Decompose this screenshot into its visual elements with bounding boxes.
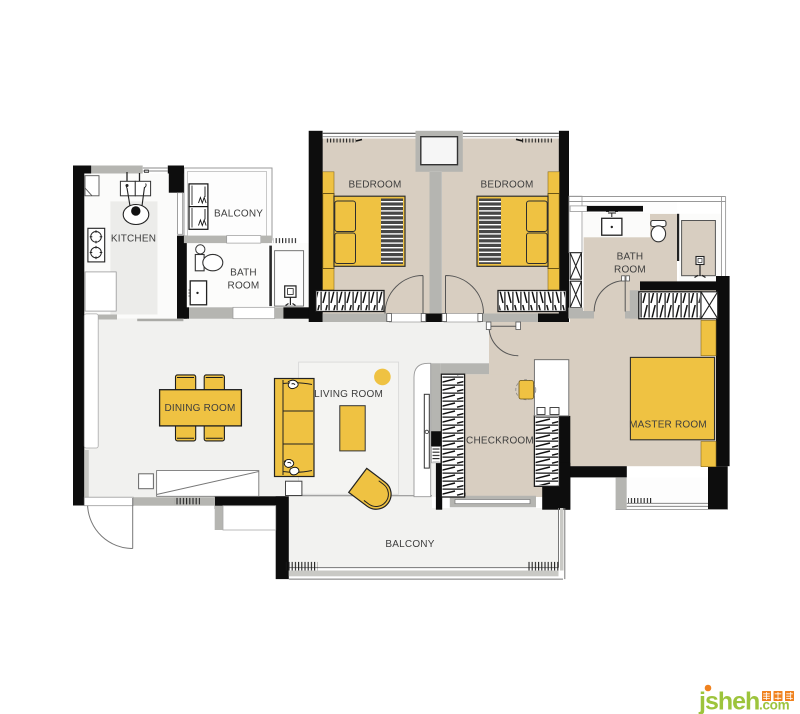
svg-text:BATH: BATH (617, 252, 644, 263)
svg-text:MASTER ROOM: MASTER ROOM (629, 420, 707, 431)
svg-text:BATH: BATH (230, 268, 257, 279)
svg-text:ROOM: ROOM (614, 265, 646, 276)
svg-text:BEDROOM: BEDROOM (480, 180, 533, 191)
svg-text:jsheh: jsheh (698, 688, 759, 714)
svg-text:DINING ROOM: DINING ROOM (164, 403, 235, 414)
svg-text:KITCHEN: KITCHEN (111, 234, 156, 245)
svg-text:BEDROOM: BEDROOM (348, 180, 401, 191)
svg-text:BALCONY: BALCONY (385, 539, 434, 550)
svg-text:BALCONY: BALCONY (214, 209, 263, 220)
svg-text:ROOM: ROOM (228, 281, 260, 292)
svg-text:CHECKROOM: CHECKROOM (466, 436, 534, 447)
svg-text:LIVING ROOM: LIVING ROOM (314, 389, 383, 400)
